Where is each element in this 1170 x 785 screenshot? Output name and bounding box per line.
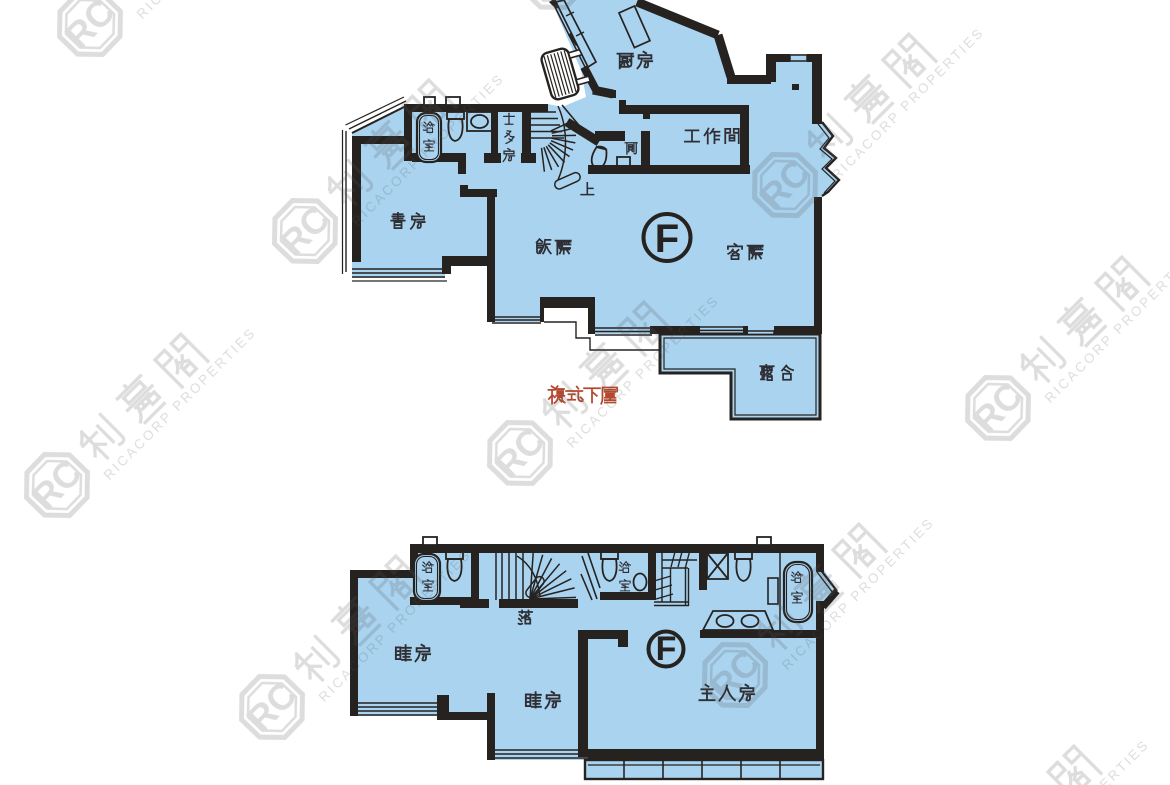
svg-text:F: F [655, 217, 679, 261]
svg-text:F: F [656, 630, 677, 668]
